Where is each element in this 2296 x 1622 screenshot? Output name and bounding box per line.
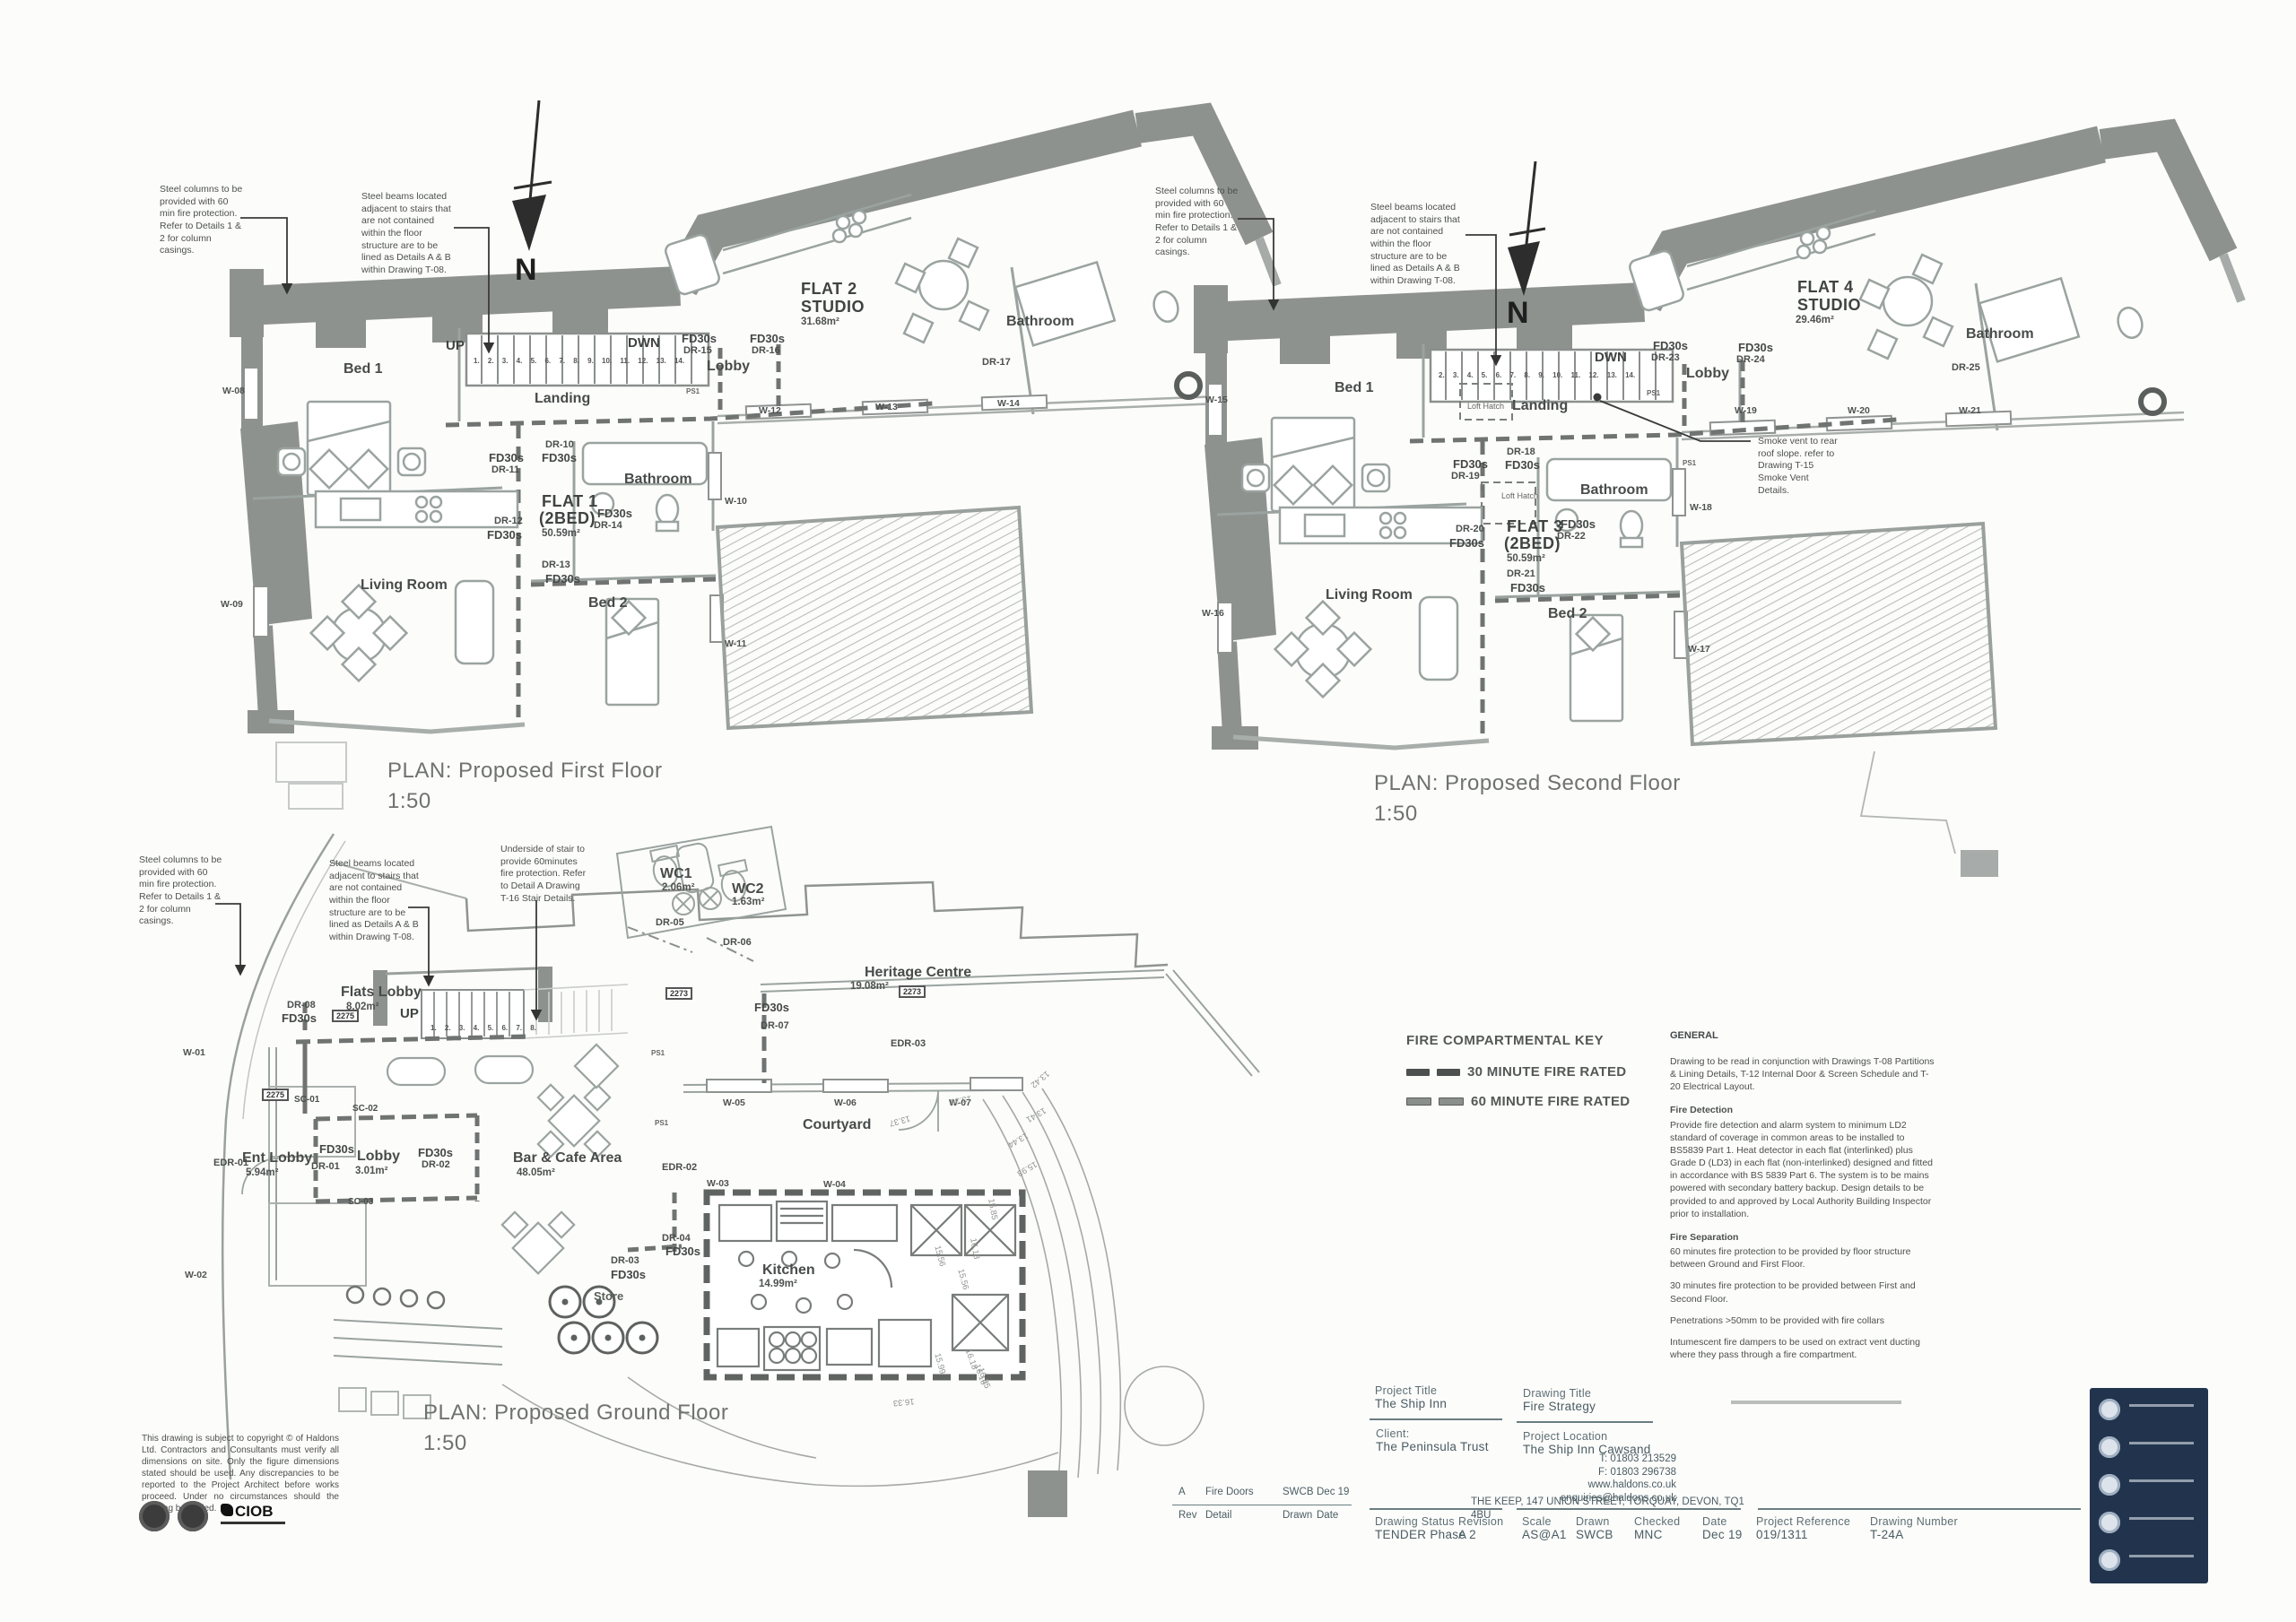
plan-label: N <box>515 253 537 288</box>
plan-label: W-03 <box>707 1178 729 1189</box>
plan-label: Bathroom <box>1966 326 2034 343</box>
plan-label: SC-03 <box>348 1197 373 1207</box>
plan-label: Bed 1 <box>344 361 383 377</box>
fire-separation-p2: 30 minutes fire protection to be provide… <box>1670 1279 1935 1305</box>
plan-label: 15.85 <box>986 1198 999 1220</box>
plan-label: DR-20 <box>1456 524 1484 534</box>
scale-label: Scale <box>1522 1515 1567 1528</box>
plan-label: FD30s <box>282 1011 317 1025</box>
plan-label: 50.59m² <box>1507 553 1545 564</box>
drawing-number-field: Drawing Number T-24A <box>1870 1515 1958 1541</box>
project-reference-field: Project Reference 019/1311 <box>1756 1515 1850 1541</box>
revision-header-drawn: Drawn <box>1283 1510 1312 1521</box>
plan-label: DR-14 <box>594 520 622 531</box>
plan-label: 31.68m² <box>801 317 839 327</box>
ciob-tagline-bar <box>221 1522 285 1524</box>
ciob-mark-icon <box>221 1504 233 1516</box>
plan-label: Ent Lobby <box>242 1150 312 1167</box>
divider <box>1517 1508 1741 1510</box>
badge-text-line <box>2129 1479 2194 1482</box>
certification-badge-icon <box>2099 1436 2120 1458</box>
plan-label: 13.37 <box>888 1113 911 1128</box>
plan-label: 15.99 <box>932 1352 947 1375</box>
plan-label: Bar & Cafe Area <box>513 1150 622 1167</box>
plan-label: Bathroom <box>1006 314 1074 330</box>
plan-label: W-11 <box>725 638 746 649</box>
plan-label: W-04 <box>823 1179 846 1190</box>
plan-label: DR-17 <box>982 357 1011 368</box>
plan-label: SC-01 <box>294 1095 319 1105</box>
plan-label: W-08 <box>222 386 245 396</box>
plan-label: 15.56 <box>932 1245 947 1268</box>
revision-row-detail: Fire Doors <box>1205 1487 1254 1497</box>
plan-label: FD30s <box>665 1245 700 1258</box>
plan-label: W-12 <box>759 405 781 416</box>
certification-badge-icon <box>2099 1549 2120 1571</box>
note-steel-beams-first: Steel beams located adjacent to stairs t… <box>361 191 458 276</box>
general-notes-title: GENERAL <box>1670 1029 1935 1043</box>
divider <box>1172 1505 1352 1505</box>
plan-label: 1. 2. 3. 4. 5. 6. 7. 8. <box>430 1024 536 1032</box>
plan-label: W-17 <box>1688 644 1710 655</box>
plan-label: W-16 <box>1202 608 1224 619</box>
ciob-logo: CIOB <box>221 1503 285 1524</box>
plan-label: FLAT 3 <box>1507 517 1563 536</box>
certification-badge-icon <box>2099 1399 2120 1420</box>
plan-label: FD30s <box>1505 458 1540 472</box>
date-label: Date <box>1702 1515 1743 1528</box>
revision-header-detail: Detail <box>1205 1510 1231 1521</box>
plan-label: 48.05m² <box>517 1167 555 1178</box>
plan-label: 15.56 <box>955 1268 970 1291</box>
plan-label: DR-12 <box>494 516 523 526</box>
revision-label: Revision <box>1458 1515 1503 1528</box>
plan-label: FD30s <box>611 1268 646 1281</box>
plan-label: DR-04 <box>662 1233 691 1244</box>
plan-label: DR-05 <box>656 917 684 928</box>
plan-label: Lobby <box>357 1149 400 1165</box>
revision-row-rev: A <box>1178 1487 1186 1497</box>
plan-label: 13.44 <box>1006 1130 1030 1149</box>
badge-text-line <box>2129 1404 2194 1407</box>
date-field: Date Dec 19 <box>1702 1515 1743 1541</box>
plan-label: 16.18 <box>968 1237 981 1260</box>
plan-label: 3.01m² <box>355 1166 387 1176</box>
plan-label: W-15 <box>1205 395 1228 405</box>
plan-label: Lobby <box>707 359 750 375</box>
plan-label: UP <box>446 338 465 353</box>
scale-value: AS@A1 <box>1522 1528 1567 1541</box>
plan-label: N <box>1507 296 1529 331</box>
professional-stamp-icon <box>178 1501 208 1531</box>
plan-label: Kitchen <box>762 1262 815 1279</box>
plan-label: 2.06m² <box>662 882 694 893</box>
plan-label: W-19 <box>1735 405 1757 416</box>
fire-rated-30-line-icon <box>1406 1069 1430 1076</box>
plan-label: 1:50 <box>387 789 431 814</box>
professional-stamp-icon <box>139 1501 170 1531</box>
plan-label: FD30s <box>542 451 577 464</box>
scale-field: Scale AS@A1 <box>1522 1515 1567 1541</box>
plan-label: W-13 <box>875 402 898 412</box>
note-steel-beams-ground: Steel beams located adjacent to stairs t… <box>329 858 426 943</box>
fire-key-title: FIRE COMPARTMENTAL KEY <box>1406 1033 1702 1048</box>
note-steel-columns-first: Steel columns to be provided with 60 min… <box>160 184 244 257</box>
plan-label: 2273 <box>665 987 692 1000</box>
ciob-wordmark: CIOB <box>235 1503 274 1520</box>
plan-label: 13.41 <box>1024 1105 1048 1123</box>
drawing-title-value: Fire Strategy <box>1523 1400 1596 1413</box>
revision-row-date: Dec 19 <box>1317 1487 1349 1497</box>
plan-label: FD30s <box>1449 536 1484 550</box>
plan-label: (2BED) <box>539 509 596 528</box>
plan-label: FLAT 2 <box>801 280 857 299</box>
revision-field: Revision A <box>1458 1515 1503 1541</box>
general-notes-intro: Drawing to be read in conjunction with D… <box>1670 1055 1935 1094</box>
plan-label: FD30s <box>1653 339 1688 352</box>
fire-separation-p3: Penetrations >50mm to be provided with f… <box>1670 1314 1935 1327</box>
plan-label: FD30s <box>1738 341 1773 354</box>
fine-print-strip <box>1731 1401 1901 1404</box>
plan-label: STUDIO <box>801 298 865 317</box>
plan-label: FD30s <box>487 528 522 542</box>
plan-label: 2. 3. 4. 5. 6. 7. 8. 9. 10. 11. 12. 13. … <box>1439 371 1635 379</box>
fire-rated-30-line-icon <box>1437 1069 1460 1076</box>
plan-label: FLAT 4 <box>1797 278 1854 297</box>
plan-label: DR-06 <box>723 937 752 948</box>
drawing-number-value: T-24A <box>1870 1528 1958 1541</box>
plan-label: W-21 <box>1959 405 1981 416</box>
plan-label: 1:50 <box>1374 802 1418 827</box>
plan-label: WC1 <box>660 866 692 882</box>
plan-label: 29.46m² <box>1796 315 1834 325</box>
plan-label: DR-25 <box>1952 362 1980 373</box>
plan-label: Flats Lobby <box>341 984 422 1001</box>
plan-label: Living Room <box>361 577 448 594</box>
plan-label: DR-02 <box>422 1159 450 1170</box>
project-title-field: Project Title The Ship Inn <box>1375 1384 1447 1410</box>
plan-label: 1:50 <box>423 1431 467 1456</box>
plan-label: DR-19 <box>1451 471 1480 481</box>
plan-label: DWN <box>1595 350 1627 365</box>
plan-label: 2273 <box>899 985 926 998</box>
fire-key-item-60min: 60 MINUTE FIRE RATED <box>1406 1094 1702 1109</box>
plan-label: WC2 <box>732 881 764 898</box>
certification-badge-icon <box>2099 1474 2120 1496</box>
drawing-sheet: Bed 1UPDWNLanding1. 2. 3. 4. 5. 6. 7. 8.… <box>0 0 2296 1622</box>
plan-label: FLAT 1 <box>542 492 598 511</box>
plan-label: 5.94m² <box>246 1167 278 1178</box>
plan-label: DR-24 <box>1736 354 1765 365</box>
plan-label: DR-10 <box>545 439 574 450</box>
plan-label: EDR-03 <box>891 1038 926 1049</box>
plan-label: W-18 <box>1690 502 1712 513</box>
plan-label: DR-13 <box>542 559 570 570</box>
fire-separation-p1: 60 minutes fire protection to be provide… <box>1670 1245 1935 1271</box>
project-location-label: Project Location <box>1523 1430 1651 1443</box>
drawn-value: SWCB <box>1576 1528 1613 1541</box>
fire-rated-60-line-icon <box>1406 1097 1431 1106</box>
plan-label: Living Room <box>1326 587 1413 603</box>
note-steel-columns-ground: Steel columns to be provided with 60 min… <box>139 854 223 928</box>
client-value: The Peninsula Trust <box>1376 1440 1489 1453</box>
note-steel-beams-second: Steel beams located adjacent to stairs t… <box>1370 202 1467 287</box>
plan-label: DR-08 <box>287 1000 316 1010</box>
project-title-value: The Ship Inn <box>1375 1397 1447 1410</box>
plan-label: Bathroom <box>624 472 692 488</box>
drawn-label: Drawn <box>1576 1515 1613 1528</box>
project-reference-value: 019/1311 <box>1756 1528 1850 1541</box>
fire-key-label: 60 MINUTE FIRE RATED <box>1471 1094 1630 1109</box>
fire-compartmental-key: FIRE COMPARTMENTAL KEY 30 MINUTE FIRE RA… <box>1406 1033 1702 1123</box>
plan-label: Landing <box>1512 398 1568 414</box>
plan-label: DR-23 <box>1651 352 1680 363</box>
plan-label: Loft Hatch <box>1501 491 1538 500</box>
plan-label: PS1 <box>655 1119 668 1127</box>
plan-label: 2275 <box>262 1089 289 1101</box>
checked-field: Checked MNC <box>1634 1515 1680 1541</box>
plan-label: 14.99m² <box>759 1279 797 1289</box>
fire-key-label: 30 MINUTE FIRE RATED <box>1467 1064 1626 1080</box>
drawing-title-label: Drawing Title <box>1523 1387 1596 1400</box>
plan-label: 13.42 <box>1029 1069 1051 1090</box>
plan-label: Bed 2 <box>1548 606 1587 622</box>
revision-row-drawn: SWCB <box>1283 1487 1314 1497</box>
plan-label: 16.33 <box>892 1396 915 1408</box>
plan-label: Bathroom <box>1580 482 1648 499</box>
telephone: T: 01803 213529 <box>1495 1453 1676 1466</box>
plan-label: Courtyard <box>803 1117 871 1133</box>
plan-label: W-06 <box>834 1097 857 1108</box>
plan-label: SC-02 <box>352 1104 378 1114</box>
plan-title-second: PLAN: Proposed Second Floor <box>1374 771 1681 796</box>
revision-header-rev: Rev <box>1178 1510 1196 1521</box>
plan-label: Loft Hatch <box>1467 402 1504 411</box>
plan-labels-layer: Bed 1UPDWNLanding1. 2. 3. 4. 5. 6. 7. 8.… <box>0 0 2296 1622</box>
plan-label: Landing <box>535 391 590 407</box>
plan-label: 1.63m² <box>732 897 764 907</box>
plan-label: FD30s <box>682 332 717 345</box>
divider <box>1370 1418 1502 1420</box>
plan-label: DR-18 <box>1507 447 1535 457</box>
plan-label: EDR-01 <box>213 1158 248 1168</box>
plan-label: 1. 2. 3. 4. 5. 6. 7. 8. 9. 10. 11. 12. 1… <box>474 357 684 365</box>
plan-label: 50.59m² <box>542 528 580 539</box>
plan-label: Lobby <box>1686 366 1729 382</box>
divider <box>1758 1508 2081 1510</box>
badge-text-line <box>2129 1442 2194 1444</box>
plan-label: Store <box>594 1289 623 1303</box>
plan-label: W-10 <box>725 496 747 507</box>
plan-label: W-20 <box>1848 405 1870 416</box>
divider <box>1517 1421 1653 1423</box>
plan-label: FD30s <box>1561 517 1596 531</box>
plan-label: 19.08m² <box>850 981 889 992</box>
fire-detection-heading: Fire Detection <box>1670 1104 1935 1116</box>
fire-key-item-30min: 30 MINUTE FIRE RATED <box>1406 1064 1702 1080</box>
client-field: Client: The Peninsula Trust <box>1376 1427 1489 1453</box>
plan-label: PS1 <box>1647 389 1660 397</box>
checked-value: MNC <box>1634 1528 1680 1541</box>
plan-label: DR-03 <box>611 1255 639 1266</box>
plan-title-ground: PLAN: Proposed Ground Floor <box>423 1401 728 1426</box>
drawing-title-field: Drawing Title Fire Strategy <box>1523 1387 1596 1413</box>
plan-label: FD30s <box>1510 581 1545 594</box>
plan-label: 15.93 <box>1015 1158 1039 1177</box>
plan-label: DR-22 <box>1557 531 1586 542</box>
website: www.haldons.co.uk <box>1495 1479 1676 1492</box>
plan-label: FD30s <box>418 1146 453 1159</box>
plan-label: W-14 <box>997 398 1020 409</box>
plan-label: FD30s <box>319 1142 354 1156</box>
plan-label: PS1 <box>686 387 700 395</box>
plan-label: FD30s <box>750 332 785 345</box>
drawn-field: Drawn SWCB <box>1576 1515 1613 1541</box>
checked-label: Checked <box>1634 1515 1680 1528</box>
plan-label: PS1 <box>1683 459 1696 467</box>
plan-label: Heritage Centre <box>865 965 971 981</box>
plan-label: (2BED) <box>1504 534 1561 553</box>
date-value: Dec 19 <box>1702 1528 1743 1541</box>
fire-separation-heading: Fire Separation <box>1670 1231 1935 1244</box>
divider <box>1370 1508 1502 1510</box>
plan-label: UP <box>400 1006 419 1021</box>
revision-header-date: Date <box>1317 1510 1338 1521</box>
plan-label: PS1 <box>651 1049 665 1057</box>
plan-title-first: PLAN: Proposed First Floor <box>387 759 662 784</box>
plan-label: W-05 <box>723 1097 745 1108</box>
note-underside-stair: Underside of stair to provide 60minutes … <box>500 844 587 905</box>
plan-label: Bed 1 <box>1335 380 1374 396</box>
plan-label: EDR-02 <box>662 1162 697 1173</box>
plan-label: FD30s <box>545 572 580 585</box>
plan-label: DR-21 <box>1507 568 1535 579</box>
plan-label: FD30s <box>489 451 524 464</box>
certification-badge-icon <box>2099 1512 2120 1533</box>
client-label: Client: <box>1376 1427 1489 1440</box>
plan-label: W-09 <box>221 599 243 610</box>
fire-separation-p4: Intumescent fire dampers to be used on e… <box>1670 1336 1935 1361</box>
plan-label: Bed 2 <box>588 595 628 612</box>
note-smoke-vent: Smoke vent to rear roof slope. refer to … <box>1758 436 1842 497</box>
plan-label: DWN <box>628 335 660 351</box>
plan-label: DR-16 <box>752 345 780 356</box>
plan-label: W-01 <box>183 1047 205 1058</box>
fax: F: 01803 296738 <box>1495 1466 1676 1479</box>
fire-detection-body: Provide fire detection and alarm system … <box>1670 1119 1935 1220</box>
drawing-number-label: Drawing Number <box>1870 1515 1958 1528</box>
badge-text-line <box>2129 1517 2194 1520</box>
plan-label: FD30s <box>754 1001 789 1014</box>
revision-value: A <box>1458 1528 1503 1541</box>
project-title-label: Project Title <box>1375 1384 1447 1397</box>
plan-label: FD30s <box>1453 457 1488 471</box>
note-steel-columns-second: Steel columns to be provided with 60 min… <box>1155 186 1239 259</box>
certification-badges-panel <box>2090 1388 2208 1583</box>
fire-rated-60-line-icon <box>1439 1097 1464 1106</box>
plan-label: DR-11 <box>491 464 519 475</box>
plan-label: DR-07 <box>761 1020 789 1031</box>
project-reference-label: Project Reference <box>1756 1515 1850 1528</box>
plan-label: DR-15 <box>683 345 712 356</box>
plan-label: DR-01 <box>311 1161 340 1172</box>
plan-label: FD30s <box>597 507 632 520</box>
general-notes: GENERAL Drawing to be read in conjunctio… <box>1670 1029 1935 1370</box>
plan-label: STUDIO <box>1797 296 1861 315</box>
plan-label: 2275 <box>332 1010 359 1022</box>
plan-label: W-02 <box>185 1270 207 1280</box>
badge-text-line <box>2129 1555 2194 1557</box>
